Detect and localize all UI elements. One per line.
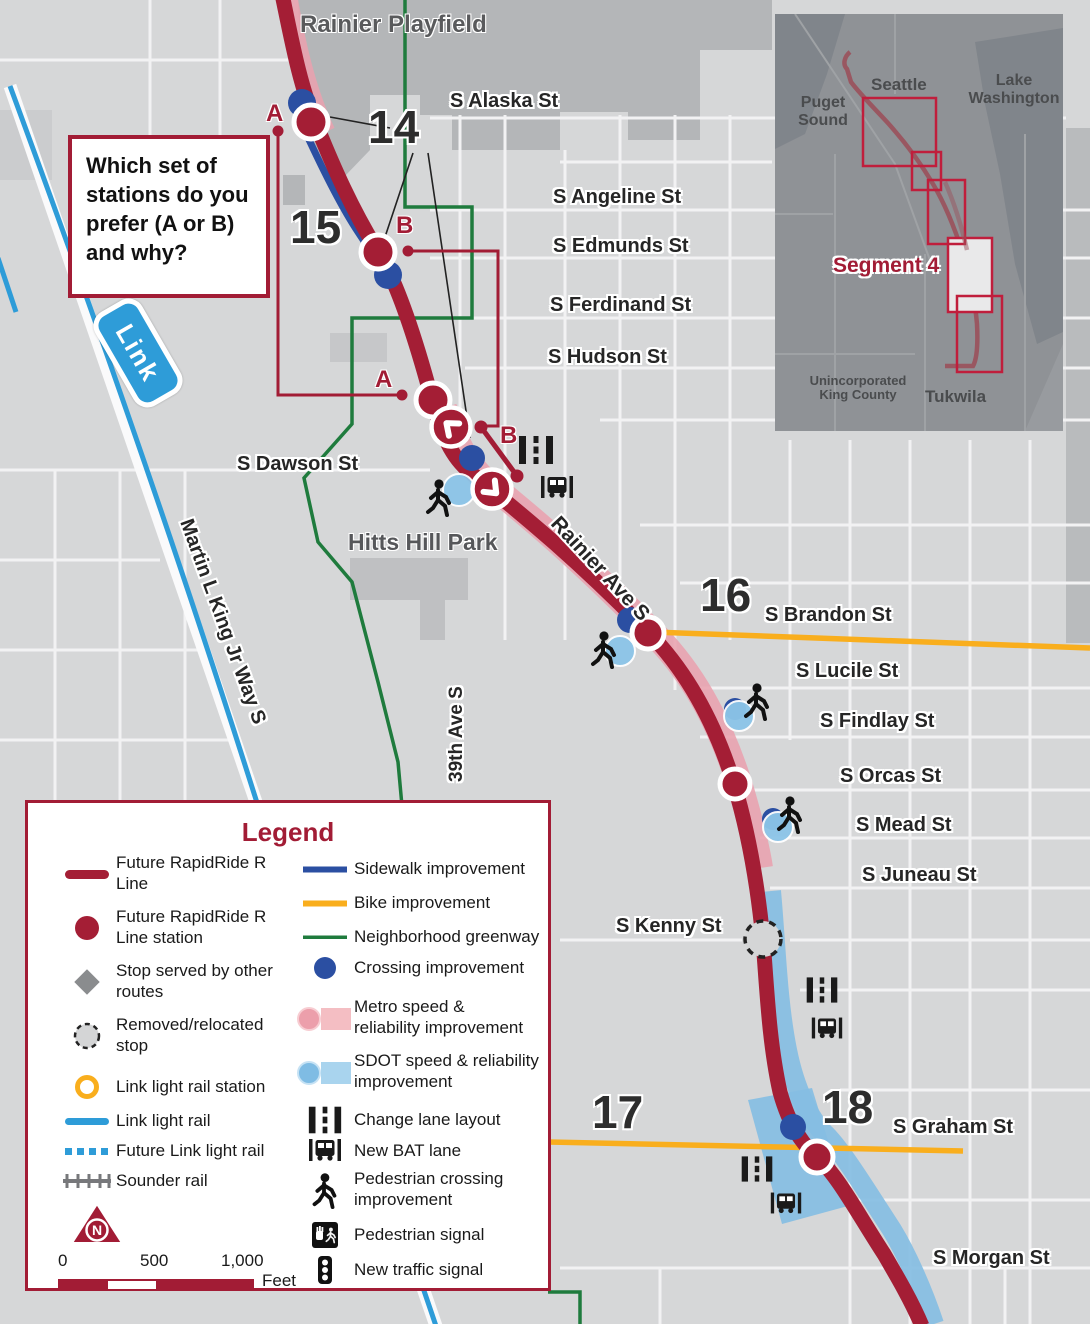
street-label-findlay: S Findlay St xyxy=(820,710,934,733)
transit-map-canvas: Rainier Playfield Hitts Hill Park S Alas… xyxy=(0,0,1090,1324)
street-label-alaska: S Alaska St xyxy=(450,90,558,113)
inset-label-lake-washington: Lake Washington xyxy=(967,72,1061,107)
legend-item-ped-crossing: Pedestrian crossing improvement xyxy=(296,1169,546,1210)
station-number-14: 14 xyxy=(368,100,419,154)
street-label-mead: S Mead St xyxy=(856,814,952,837)
rline-station-icon xyxy=(58,914,116,942)
question-box: Which set of stations do you prefer (A o… xyxy=(68,135,270,298)
legend-item-greenway: Neighborhood greenway xyxy=(296,927,546,948)
street-label-morgan: S Morgan St xyxy=(933,1247,1050,1270)
scale-1000: 1,000 xyxy=(221,1251,264,1271)
north-arrow-n: N xyxy=(92,1222,102,1238)
legend-item-bike: Bike improvement xyxy=(296,893,546,914)
street-label-brandon: S Brandon St xyxy=(765,604,892,627)
question-text: Which set of stations do you prefer (A o… xyxy=(86,153,249,265)
street-label-hudson: S Hudson St xyxy=(548,346,667,369)
legend-item-removed-stop: Removed/relocated stop xyxy=(58,1015,293,1056)
legend-item-sidewalk: Sidewalk improvement xyxy=(296,859,546,880)
inset-label-puget-sound: Puget Sound xyxy=(787,94,859,129)
scale-500: 500 xyxy=(140,1251,168,1271)
removed-stop-icon xyxy=(58,1021,116,1051)
crossing-dot-icon xyxy=(296,955,354,981)
ped-signal-icon xyxy=(296,1221,354,1249)
street-label-orcas: S Orcas St xyxy=(840,765,941,788)
scale-bar: 0 500 1,000 Feet xyxy=(58,1251,308,1291)
ped-crossing-icon xyxy=(296,1170,354,1210)
sounder-rail-icon xyxy=(58,1172,116,1190)
inset-segment-boxes xyxy=(863,98,1002,372)
other-routes-stop-icon xyxy=(58,968,116,996)
option-b-label-1: B xyxy=(396,212,413,240)
rainier-playfield-label: Rainier Playfield xyxy=(300,12,420,37)
link-rail-line-icon xyxy=(58,1116,116,1126)
metro-speed-icon xyxy=(296,1004,354,1032)
option-a-label-2: A xyxy=(375,366,392,394)
street-label-juneau: S Juneau St xyxy=(862,864,976,887)
street-label-edmunds: S Edmunds St xyxy=(553,235,689,258)
legend-item-rline-station: Future RapidRide R Line station xyxy=(58,907,293,948)
bike-line-icon xyxy=(296,899,354,908)
legend-item-bat-lane: New BAT lane xyxy=(296,1137,546,1165)
station-number-15: 15 xyxy=(290,200,341,254)
station-18 xyxy=(801,1141,833,1173)
legend-item-link-rail: Link light rail xyxy=(58,1111,293,1132)
removed-stop-marker xyxy=(745,921,781,957)
inset-label-segment-4: Segment 4 xyxy=(833,254,939,278)
station-14a xyxy=(294,105,328,139)
street-label-ferdinand: S Ferdinand St xyxy=(550,294,691,317)
north-arrow: N xyxy=(68,1201,126,1247)
inset-label-seattle: Seattle xyxy=(871,76,927,95)
bat-lane-legend-icon xyxy=(296,1137,354,1165)
station-number-17: 17 xyxy=(592,1085,643,1139)
street-label-graham: S Graham St xyxy=(893,1116,1013,1139)
inset-segment4-box xyxy=(948,238,992,312)
street-label-dawson: S Dawson St xyxy=(237,453,358,476)
inset-label-king-county: Unincorporated King County xyxy=(803,374,913,403)
inset-label-tukwila: Tukwila xyxy=(925,388,986,407)
legend-item-other-stop: Stop served by other routes xyxy=(58,961,293,1002)
option-a-label-1: A xyxy=(266,100,283,128)
station-number-16: 16 xyxy=(700,568,751,622)
legend-item-link-station: Link light rail station xyxy=(58,1073,303,1101)
rline-line-icon xyxy=(58,868,116,880)
future-link-rail-icon xyxy=(58,1146,116,1156)
street-label-angeline: S Angeline St xyxy=(553,186,681,209)
link-station-icon xyxy=(58,1073,116,1101)
legend-item-rline: Future RapidRide R Line xyxy=(58,853,293,894)
greenway-line-icon xyxy=(296,933,354,941)
legend-item-metro-speed: Metro speed & reliability improvement xyxy=(296,997,546,1038)
station-14b xyxy=(361,235,395,269)
traffic-signal-icon xyxy=(296,1255,354,1285)
legend-item-traffic-signal: New traffic signal xyxy=(296,1255,546,1285)
sdot-speed-icon xyxy=(296,1058,354,1086)
change-lane-icon xyxy=(296,1105,354,1135)
street-label-39th-ave: 39th Ave S xyxy=(446,686,468,782)
option-b-label-2: B xyxy=(500,422,517,450)
hitts-hill-park-label: Hitts Hill Park xyxy=(348,530,438,554)
legend-item-change-lane: Change lane layout xyxy=(296,1105,546,1135)
legend-item-future-link: Future Link light rail xyxy=(58,1141,293,1162)
legend-item-crossing: Crossing improvement xyxy=(296,955,546,981)
legend-item-sounder: Sounder rail xyxy=(58,1171,293,1192)
legend-title: Legend xyxy=(28,817,548,848)
legend-panel: Legend Future RapidRide R Line Future Ra… xyxy=(25,800,551,1291)
scale-bar-graphic xyxy=(58,1279,254,1291)
street-label-kenny: S Kenny St xyxy=(616,915,722,938)
legend-item-sdot-speed: SDOT speed & reliability improvement xyxy=(296,1051,546,1092)
station-number-18: 18 xyxy=(822,1080,873,1134)
inset-overview-map: Puget Sound Seattle Lake Washington Segm… xyxy=(775,14,1063,431)
street-label-lucile: S Lucile St xyxy=(796,660,898,683)
sidewalk-line-icon xyxy=(296,865,354,874)
legend-item-ped-signal: Pedestrian signal xyxy=(296,1221,546,1249)
scale-unit: Feet xyxy=(262,1271,296,1291)
hitts-hill-park-area xyxy=(350,558,468,640)
station-orcas xyxy=(720,769,750,799)
scale-0: 0 xyxy=(58,1251,67,1271)
